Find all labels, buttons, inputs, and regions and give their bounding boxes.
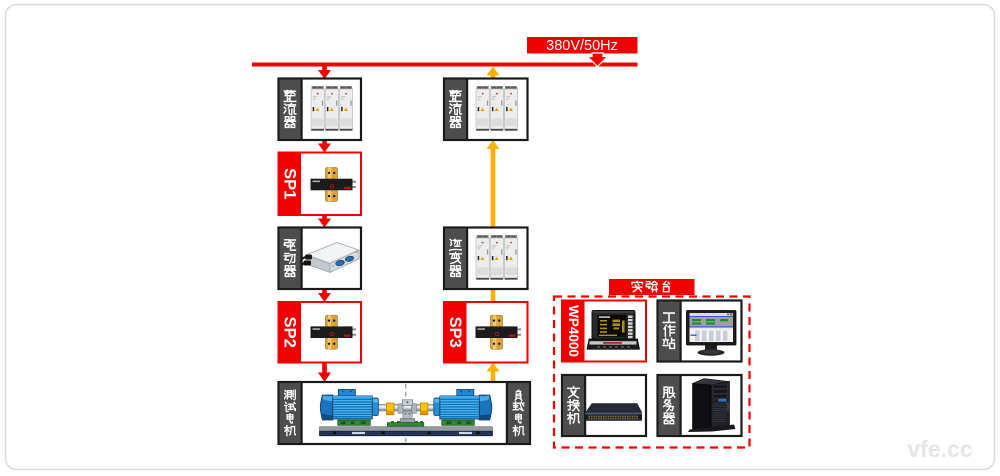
svg-text:SP2: SP2 (281, 317, 299, 348)
svg-text:WP4000: WP4000 (566, 305, 581, 357)
svg-text:SP3: SP3 (446, 317, 464, 348)
svg-text:SP1: SP1 (281, 168, 299, 199)
svg-text:vfe.cc: vfe.cc (907, 436, 972, 462)
svg-text:380V/50Hz: 380V/50Hz (546, 38, 618, 54)
